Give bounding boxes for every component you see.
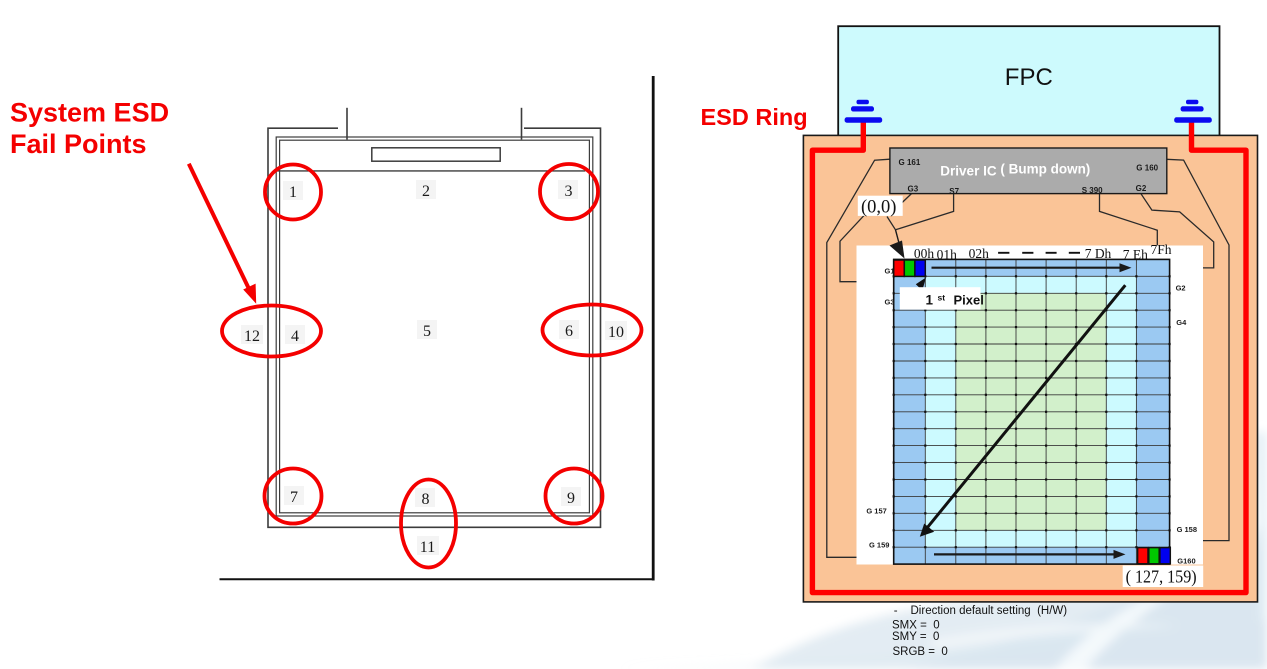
- svg-text:7: 7: [290, 489, 298, 506]
- svg-text:2: 2: [422, 183, 430, 200]
- svg-text:G4: G4: [1176, 318, 1187, 327]
- svg-text:st: st: [938, 293, 946, 303]
- svg-text:G 160: G 160: [1136, 164, 1158, 173]
- svg-text:01h: 01h: [937, 247, 958, 262]
- svg-text:G 159: G 159: [869, 541, 889, 550]
- svg-text:1: 1: [926, 293, 934, 308]
- svg-text:5: 5: [423, 323, 431, 340]
- svg-text:( 127, 159): ( 127, 159): [1126, 567, 1197, 588]
- svg-text:9: 9: [567, 490, 575, 507]
- svg-text:12: 12: [244, 328, 260, 345]
- svg-text:SMX = 0: SMX = 0: [892, 620, 940, 632]
- svg-text:SRGB = 0: SRGB = 0: [893, 646, 948, 658]
- svg-text:S 390: S 390: [1082, 186, 1103, 195]
- svg-text:SMY = 0: SMY = 0: [892, 631, 939, 643]
- svg-text:G1: G1: [885, 267, 895, 276]
- svg-text:7Fh: 7Fh: [1150, 242, 1171, 257]
- svg-text:7 Dh: 7 Dh: [1085, 246, 1112, 261]
- svg-text:11: 11: [420, 539, 435, 556]
- svg-text:Fail Points: Fail Points: [10, 129, 147, 159]
- svg-text:-: -: [894, 605, 898, 617]
- svg-text:G 158: G 158: [1177, 525, 1197, 534]
- svg-text:G2: G2: [1136, 184, 1147, 193]
- svg-text:G3: G3: [885, 298, 895, 307]
- svg-text:Pixel: Pixel: [954, 293, 984, 308]
- svg-text:1: 1: [289, 184, 297, 201]
- svg-text:6: 6: [565, 323, 573, 340]
- svg-text:00h: 00h: [914, 246, 935, 261]
- svg-text:System ESD: System ESD: [10, 98, 169, 128]
- svg-text:Driver IC ( Bump down): Driver IC ( Bump down): [940, 162, 1090, 179]
- svg-text:S7: S7: [949, 187, 959, 196]
- svg-text:4: 4: [291, 328, 299, 345]
- svg-text:(0,0): (0,0): [861, 198, 896, 218]
- svg-text:02h: 02h: [969, 246, 990, 261]
- svg-text:Direction default setting (H/: Direction default setting (H/W): [911, 605, 1068, 617]
- svg-text:G2: G2: [1176, 284, 1186, 293]
- svg-text:G 161: G 161: [899, 158, 921, 167]
- svg-text:G 157: G 157: [866, 507, 886, 516]
- svg-text:3: 3: [565, 183, 573, 200]
- svg-text:ESD Ring: ESD Ring: [701, 104, 808, 130]
- svg-text:G160: G160: [1177, 557, 1195, 566]
- svg-text:7 Eh: 7 Eh: [1123, 247, 1148, 262]
- svg-text:8: 8: [422, 491, 430, 508]
- svg-text:10: 10: [608, 324, 624, 341]
- svg-text:G3: G3: [908, 184, 919, 193]
- svg-text:FPC: FPC: [1005, 64, 1053, 91]
